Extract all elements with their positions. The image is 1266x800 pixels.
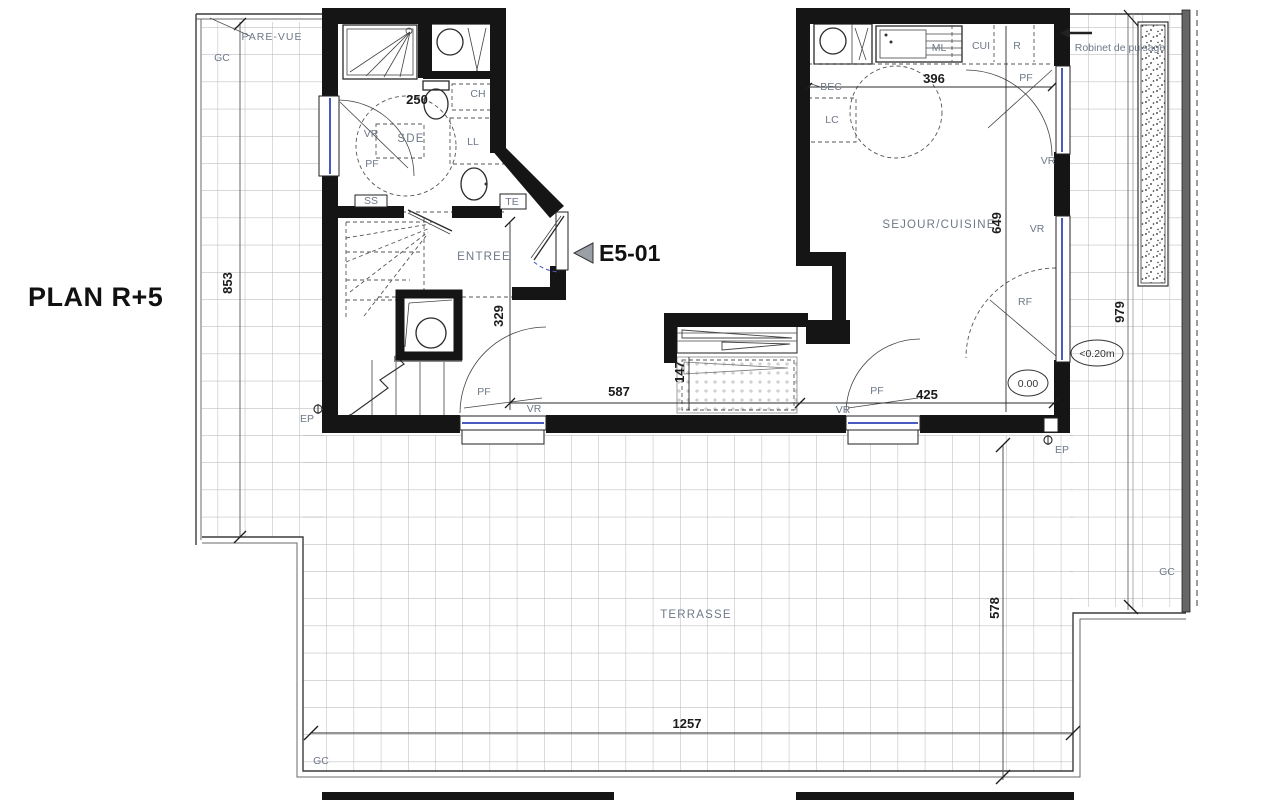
label-vr-kitchen: VR xyxy=(1041,155,1056,167)
room-label-entree: ENTREE xyxy=(457,251,511,263)
room-label-sejour: SEJOUR/CUISINE xyxy=(882,219,995,231)
label-gc-bottom-right: GC xyxy=(1159,566,1175,578)
label-bec: BEC xyxy=(820,81,842,93)
label-cui: CUI xyxy=(972,40,990,52)
dim-425: 425 xyxy=(916,387,938,402)
dim-396: 396 xyxy=(923,71,945,86)
level-interior: 0.00 xyxy=(1018,378,1039,390)
terrace-railing xyxy=(1182,10,1190,612)
label-vr-bath: VR xyxy=(364,128,379,140)
dim-1257: 1257 xyxy=(673,716,702,731)
label-ll: LL xyxy=(467,136,479,148)
label-pf-kitchen: PF xyxy=(1019,72,1032,84)
floor-plan-page: PLAN R+5 xyxy=(0,0,1266,800)
label-rf: RF xyxy=(1018,296,1032,308)
label-pf-south-2: PF xyxy=(870,385,883,397)
label-lc: LC xyxy=(825,114,839,126)
bay-window xyxy=(677,325,797,413)
label-pf-south-1: PF xyxy=(477,386,490,398)
lower-floor-walls xyxy=(322,792,1074,800)
dim-649: 649 xyxy=(989,212,1004,234)
dim-147: 147 xyxy=(672,361,687,383)
dim-250: 250 xyxy=(406,92,428,107)
level-terrace: <0.20m xyxy=(1079,348,1115,360)
dim-329: 329 xyxy=(491,305,506,327)
label-gc-bottom-left: GC xyxy=(313,755,329,767)
room-label-terrasse: TERRASSE xyxy=(660,609,732,621)
floor-plan-svg: 0.00 <0.20m E5-01 PARE-VUE GC GC GC xyxy=(0,0,1266,800)
label-gc-top-left: GC xyxy=(214,52,230,64)
label-te: TE xyxy=(505,196,518,208)
dim-979: 979 xyxy=(1112,301,1127,323)
label-ep-right: EP xyxy=(1055,444,1069,456)
dim-578: 578 xyxy=(987,597,1002,619)
utility-closet xyxy=(400,294,458,356)
label-pf-bath: PF xyxy=(365,158,378,170)
planter-strip xyxy=(1138,22,1168,286)
room-label-sde: SDE xyxy=(397,133,424,145)
unit-marker-code: E5-01 xyxy=(599,240,661,266)
label-ml: ML xyxy=(932,42,947,54)
label-vr-south-1: VR xyxy=(527,403,542,415)
label-ss: SS xyxy=(364,195,378,207)
label-robinet: Robinet de puisage xyxy=(1075,42,1166,54)
label-vr-south-2: VR xyxy=(836,404,851,416)
dim-853: 853 xyxy=(220,272,235,294)
label-pare-vue: PARE-VUE xyxy=(242,31,303,43)
label-ep-left: EP xyxy=(300,413,314,425)
label-vr-living: VR xyxy=(1030,223,1045,235)
label-r: R xyxy=(1013,40,1021,52)
dim-587: 587 xyxy=(608,384,630,399)
label-ch: CH xyxy=(470,88,485,100)
